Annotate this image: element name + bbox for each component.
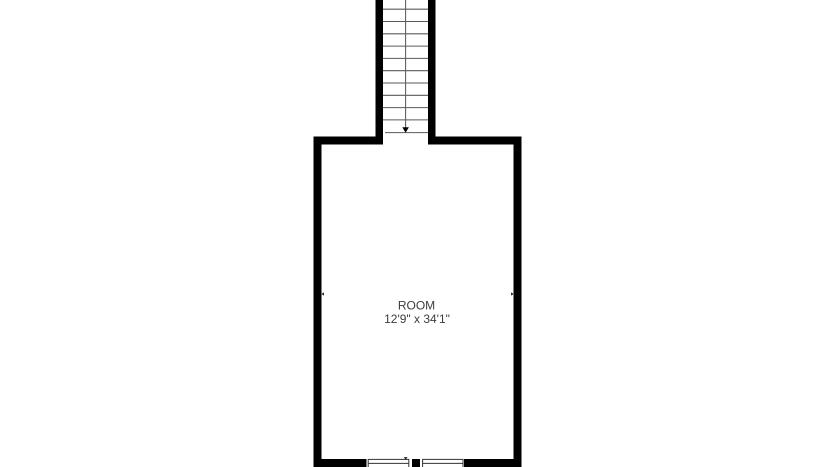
svg-text:12'9" x 34'1": 12'9" x 34'1": [384, 312, 450, 326]
svg-text:ROOM: ROOM: [398, 299, 435, 313]
